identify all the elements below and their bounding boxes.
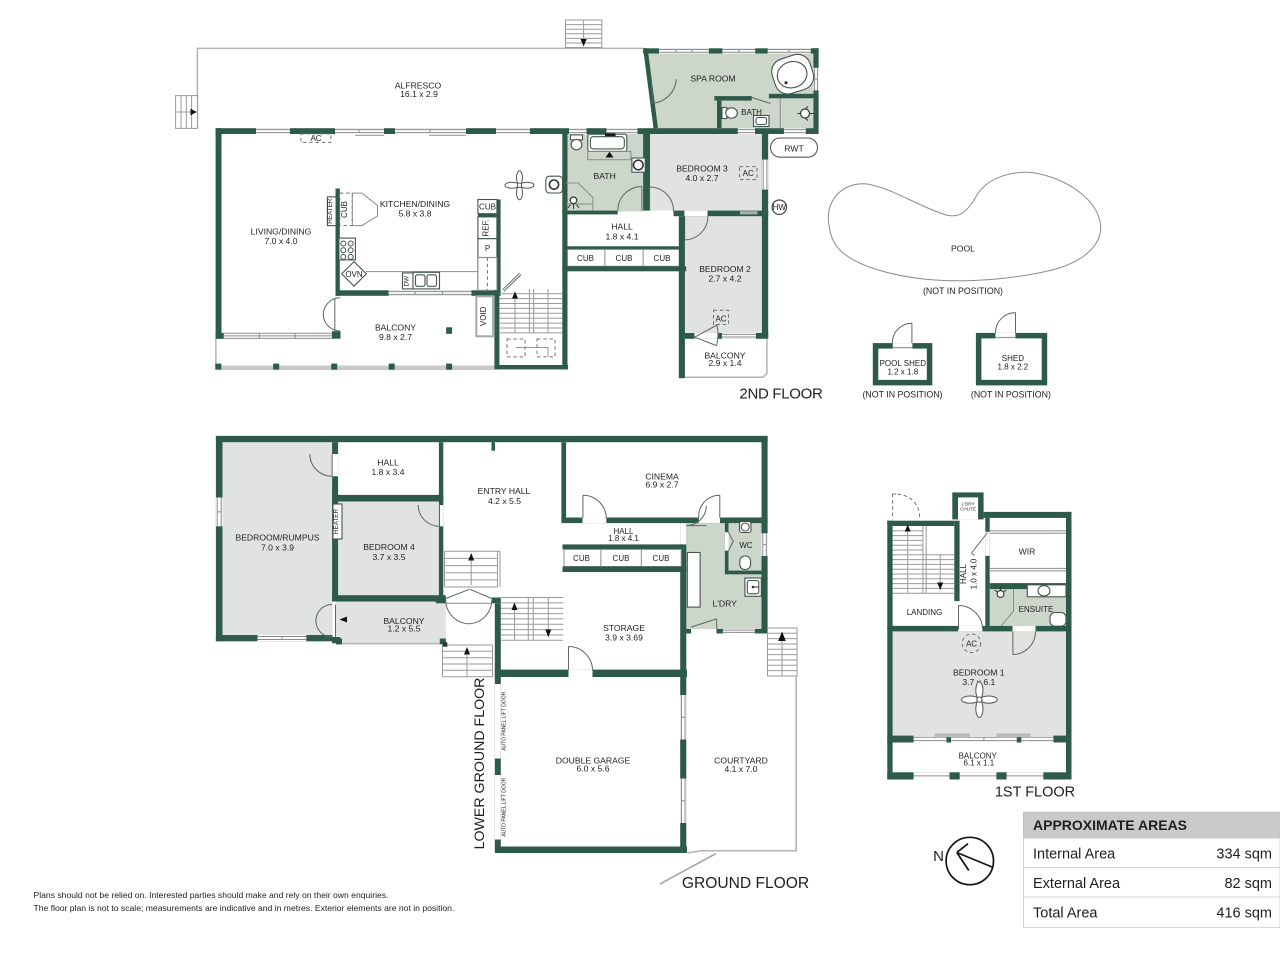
svg-text:N: N xyxy=(933,848,944,865)
svg-text:BATH: BATH xyxy=(594,171,616,181)
svg-text:1.2 x 5.5: 1.2 x 5.5 xyxy=(388,624,421,634)
svg-text:HALL: HALL xyxy=(611,222,633,232)
svg-text:Total Area: Total Area xyxy=(1033,906,1098,922)
svg-text:CUB: CUB xyxy=(653,554,670,563)
svg-text:Internal Area: Internal Area xyxy=(1033,847,1116,863)
svg-text:CUB: CUB xyxy=(577,254,594,263)
svg-text:334 sqm: 334 sqm xyxy=(1216,847,1272,863)
svg-text:AUTO PANEL LIFT DOOR: AUTO PANEL LIFT DOOR xyxy=(502,777,508,836)
svg-text:HALL: HALL xyxy=(377,458,399,468)
svg-text:The floor plan is not to scale: The floor plan is not to scale; measurem… xyxy=(34,903,455,913)
svg-text:LIVING/DINING: LIVING/DINING xyxy=(251,227,312,237)
svg-text:6.0 x 5.6: 6.0 x 5.6 xyxy=(577,764,610,774)
svg-text:3.7 x 3.5: 3.7 x 3.5 xyxy=(373,552,406,562)
svg-text:16.1 x 2.9: 16.1 x 2.9 xyxy=(400,89,438,99)
svg-text:82 sqm: 82 sqm xyxy=(1224,876,1272,892)
svg-text:CUB: CUB xyxy=(616,254,633,263)
svg-text:STORAGE: STORAGE xyxy=(603,623,645,633)
svg-text:9.8 x 2.7: 9.8 x 2.7 xyxy=(379,332,412,342)
svg-text:3.9 x 3.69: 3.9 x 3.69 xyxy=(605,633,643,643)
svg-text:SPA ROOM: SPA ROOM xyxy=(690,74,735,84)
svg-text:ENTRY HALL: ENTRY HALL xyxy=(478,486,531,496)
svg-text:416 sqm: 416 sqm xyxy=(1216,906,1272,922)
svg-text:CUB: CUB xyxy=(340,201,349,218)
svg-text:HALL: HALL xyxy=(959,563,968,584)
svg-text:CUB: CUB xyxy=(573,554,590,563)
svg-text:(NOT IN POSITION): (NOT IN POSITION) xyxy=(923,286,1003,296)
svg-text:L'DRY: L'DRY xyxy=(712,599,737,609)
svg-text:BEDROOM 2: BEDROOM 2 xyxy=(699,264,751,274)
svg-text:VOID: VOID xyxy=(479,306,488,326)
svg-text:APPROXIMATE AREAS: APPROXIMATE AREAS xyxy=(1033,817,1187,833)
svg-text:1.8 x 4.1: 1.8 x 4.1 xyxy=(608,534,639,543)
svg-text:LOWER GROUND FLOOR: LOWER GROUND FLOOR xyxy=(472,678,488,850)
svg-text:CHUTE: CHUTE xyxy=(960,507,976,512)
svg-text:P: P xyxy=(485,244,490,253)
svg-text:External Area: External Area xyxy=(1033,876,1121,892)
svg-text:REF.: REF. xyxy=(481,219,490,236)
svg-text:GROUND FLOOR: GROUND FLOOR xyxy=(682,875,809,892)
svg-text:CUB: CUB xyxy=(654,254,671,263)
svg-text:1.8 x 2.2: 1.8 x 2.2 xyxy=(998,363,1029,372)
svg-text:AUTO PANEL LIFT DOOR: AUTO PANEL LIFT DOOR xyxy=(502,691,508,750)
svg-text:1.2 x 1.8: 1.2 x 1.8 xyxy=(887,368,918,377)
svg-text:7.0 x 3.9: 7.0 x 3.9 xyxy=(261,542,294,552)
svg-text:WC: WC xyxy=(739,541,753,550)
svg-text:AC: AC xyxy=(743,169,754,178)
svg-text:DW: DW xyxy=(403,276,410,287)
svg-text:6.9 x 2.7: 6.9 x 2.7 xyxy=(646,480,679,490)
svg-text:BEDROOM/RUMPUS: BEDROOM/RUMPUS xyxy=(235,533,319,543)
svg-text:4.2 x 5.5: 4.2 x 5.5 xyxy=(488,496,521,506)
svg-text:AC: AC xyxy=(310,134,321,143)
svg-text:1.0 x 4.0: 1.0 x 4.0 xyxy=(970,558,979,589)
svg-text:KITCHEN/DINING: KITCHEN/DINING xyxy=(380,199,451,209)
svg-text:2.9 x 1.4: 2.9 x 1.4 xyxy=(709,358,742,368)
svg-text:WIR: WIR xyxy=(1019,547,1036,557)
svg-text:HEATER: HEATER xyxy=(333,509,340,535)
svg-text:(NOT IN POSITION): (NOT IN POSITION) xyxy=(863,390,943,400)
svg-text:6.1 x 1.1: 6.1 x 1.1 xyxy=(963,759,994,768)
svg-text:ENSUITE: ENSUITE xyxy=(1019,605,1054,614)
svg-text:RWT: RWT xyxy=(784,143,804,153)
svg-text:LANDING: LANDING xyxy=(907,608,943,617)
svg-text:7.0 x 4.0: 7.0 x 4.0 xyxy=(265,236,298,246)
svg-text:4.0 x 2.7: 4.0 x 2.7 xyxy=(686,173,719,183)
svg-text:OVN: OVN xyxy=(345,270,363,279)
svg-text:AC: AC xyxy=(966,640,977,649)
svg-text:POOL: POOL xyxy=(951,244,975,254)
svg-text:4.1 x 7.0: 4.1 x 7.0 xyxy=(725,764,758,774)
svg-text:1.8 x 3.4: 1.8 x 3.4 xyxy=(372,467,405,477)
svg-text:2.7 x 4.2: 2.7 x 4.2 xyxy=(709,274,742,284)
svg-text:2ND FLOOR: 2ND FLOOR xyxy=(739,386,823,403)
svg-text:CUB: CUB xyxy=(613,554,630,563)
svg-text:1ST FLOOR: 1ST FLOOR xyxy=(995,785,1075,801)
svg-text:(NOT IN POSITION): (NOT IN POSITION) xyxy=(971,390,1051,400)
svg-text:BEDROOM 3: BEDROOM 3 xyxy=(676,164,728,174)
svg-text:Plans should not be relied on.: Plans should not be relied on. Intereste… xyxy=(34,890,389,900)
svg-text:HEATER: HEATER xyxy=(327,198,334,224)
svg-text:CUB: CUB xyxy=(479,203,496,212)
svg-text:BEDROOM 4: BEDROOM 4 xyxy=(363,542,415,552)
svg-text:5.8 x 3.8: 5.8 x 3.8 xyxy=(399,209,432,219)
svg-text:HW: HW xyxy=(773,203,787,212)
svg-text:1.8 x 4.1: 1.8 x 4.1 xyxy=(606,232,639,242)
svg-text:AC: AC xyxy=(715,315,726,324)
